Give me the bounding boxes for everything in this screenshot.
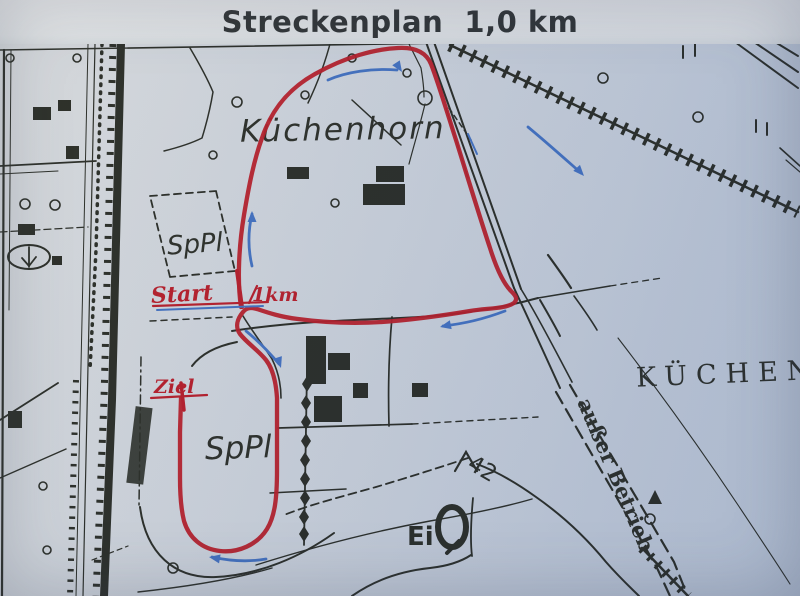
arrow-head-icon — [439, 320, 452, 331]
tree — [50, 200, 60, 210]
tree — [6, 54, 14, 62]
building — [33, 107, 51, 120]
water-tower-icon — [438, 498, 473, 556]
label-kuechen-district: KÜCHEN — [635, 352, 800, 394]
gate-symbol — [8, 245, 50, 269]
tree — [73, 54, 81, 62]
start-label: Start — [150, 280, 213, 309]
map-photo: Streckenplan 1,0 km — [0, 0, 800, 596]
building — [412, 383, 428, 397]
tree — [403, 69, 411, 77]
building — [52, 256, 62, 265]
finish-label: Ziel — [153, 376, 194, 398]
label-sppl-upper: SpPl — [166, 228, 225, 262]
fence-line — [299, 370, 312, 545]
page-title: Streckenplan 1,0 km — [222, 5, 579, 39]
map-labels: Küchenhorn SpPl SpPl KÜCHEN außer Betrie… — [166, 110, 800, 555]
tree — [331, 199, 339, 207]
tree — [232, 97, 242, 107]
arrow-head-icon — [248, 211, 257, 222]
building — [287, 167, 309, 179]
left-railway-band — [0, 44, 128, 596]
label-ei: Ei — [407, 522, 434, 552]
dark-area — [126, 406, 152, 484]
rail-triangle-icon — [648, 490, 662, 504]
building — [58, 100, 71, 111]
route-map: Küchenhorn SpPl SpPl KÜCHEN außer Betrie… — [0, 0, 800, 596]
label-sppl-lower: SpPl — [204, 429, 272, 467]
direction-arrow — [328, 69, 397, 80]
building — [363, 184, 405, 205]
direction-arrow — [528, 127, 581, 173]
tree — [301, 91, 309, 99]
building — [66, 146, 79, 159]
building — [18, 224, 35, 235]
tree — [598, 73, 608, 83]
tree — [20, 199, 30, 209]
distance-label: 1km — [252, 284, 299, 306]
tree — [209, 151, 217, 159]
label-ausser-betrieb: außer Betrieb — [572, 394, 659, 555]
direction-arrow — [212, 557, 266, 561]
tree — [693, 112, 703, 122]
building — [314, 396, 342, 422]
buildings — [8, 100, 428, 485]
title-band: Streckenplan 1,0 km — [0, 0, 800, 44]
start-line — [237, 271, 242, 307]
building — [8, 411, 22, 428]
building — [328, 353, 350, 370]
tree — [39, 482, 47, 490]
tree — [43, 546, 51, 554]
tree — [418, 91, 432, 105]
building — [353, 383, 368, 398]
building — [376, 166, 404, 182]
building — [306, 336, 326, 384]
arrow-head-icon — [208, 553, 220, 564]
